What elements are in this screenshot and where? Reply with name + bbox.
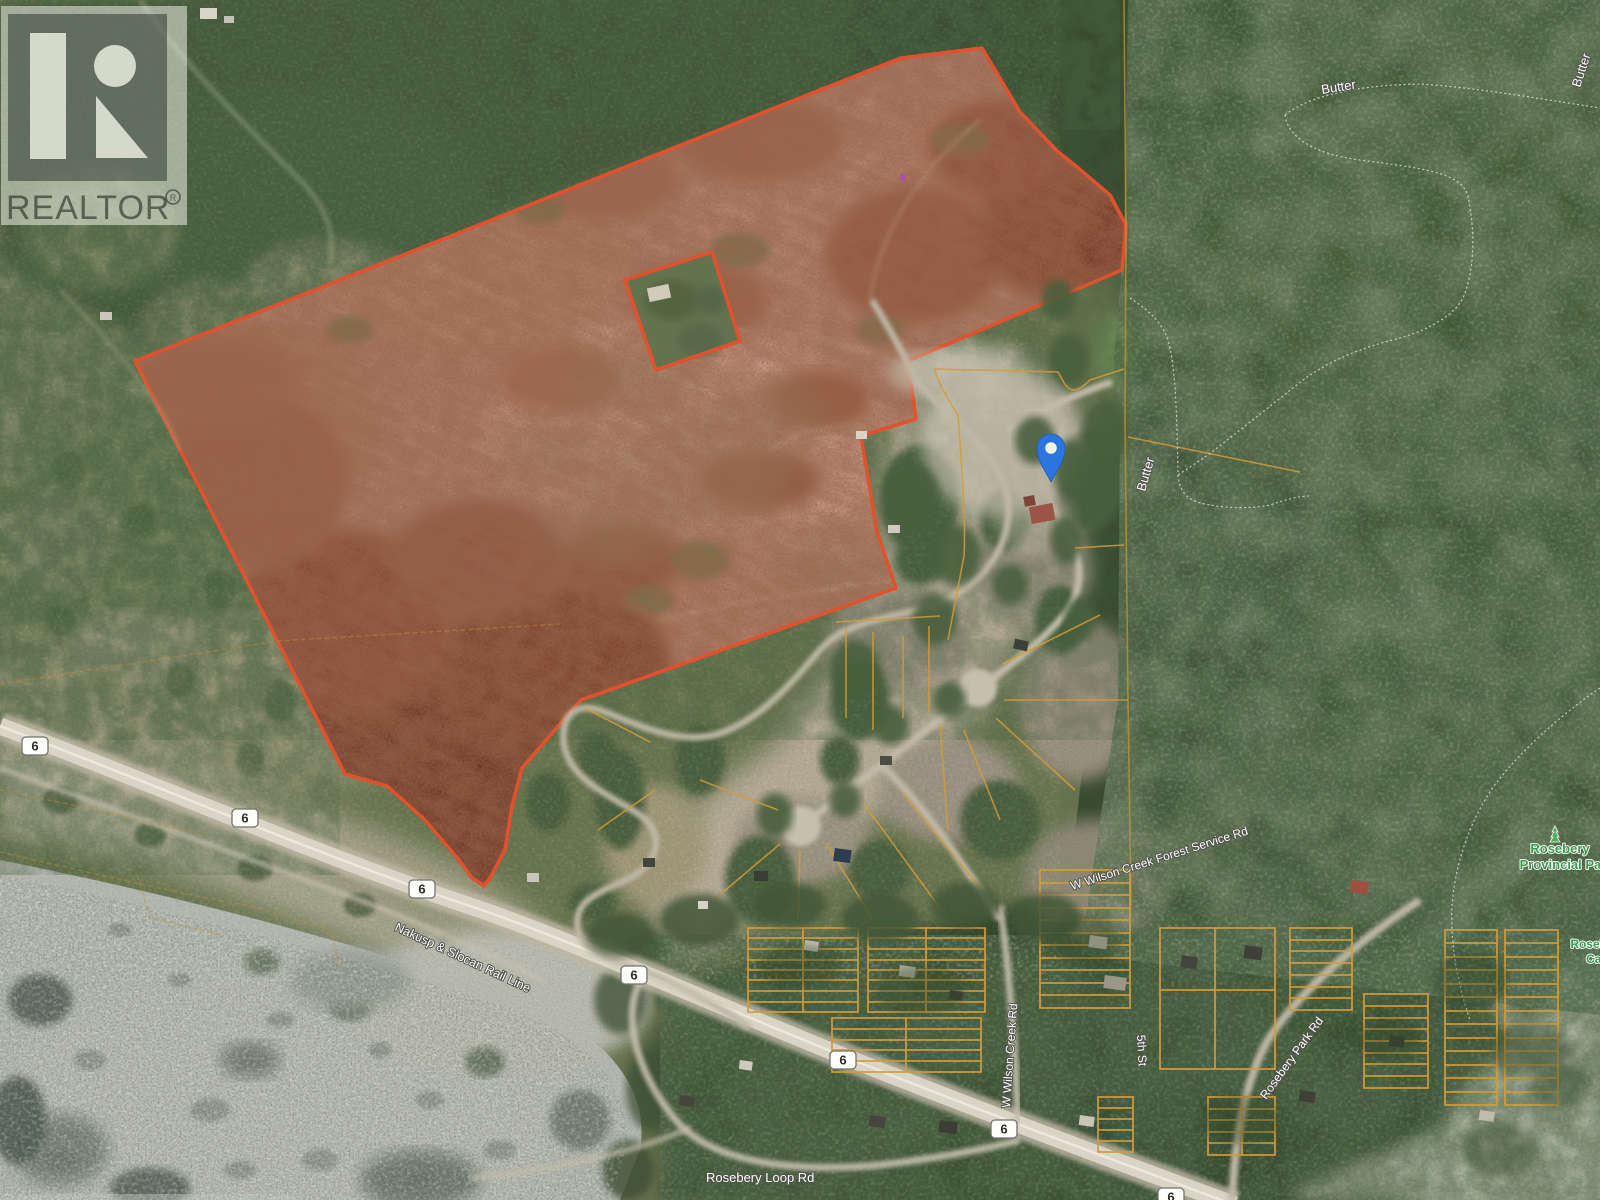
svg-text:6: 6 xyxy=(241,811,248,826)
svg-text:Car: Car xyxy=(1586,952,1600,966)
svg-text:Provincial Par: Provincial Par xyxy=(1520,857,1600,872)
svg-text:6: 6 xyxy=(1000,1122,1007,1137)
svg-text:6: 6 xyxy=(630,968,637,983)
svg-text:6: 6 xyxy=(1167,1190,1174,1200)
svg-text:R: R xyxy=(170,193,177,203)
svg-text:REALTOR: REALTOR xyxy=(6,189,170,227)
svg-text:Rosebe: Rosebe xyxy=(1570,937,1600,951)
svg-text:Rosebery Loop Rd: Rosebery Loop Rd xyxy=(706,1170,814,1185)
svg-text:6: 6 xyxy=(418,882,425,897)
svg-text:Rosebery: Rosebery xyxy=(1530,841,1590,856)
svg-text:5th St: 5th St xyxy=(1134,1034,1150,1067)
svg-text:6: 6 xyxy=(31,739,38,754)
svg-text:6: 6 xyxy=(839,1053,846,1068)
